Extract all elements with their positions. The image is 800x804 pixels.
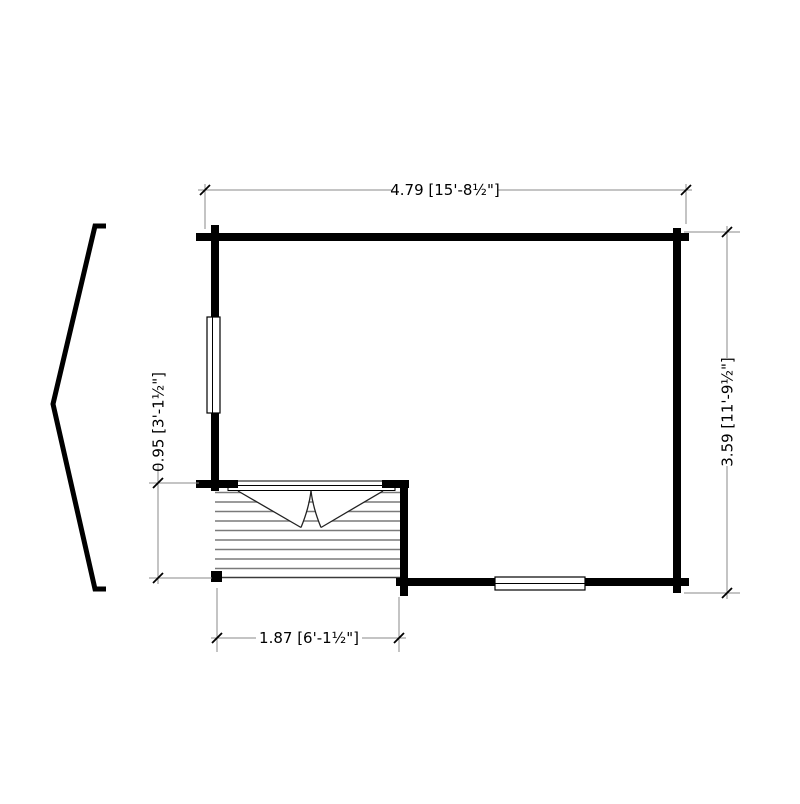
roof-gable-outline — [53, 226, 106, 589]
left-dimension: 0.95 [3'-1½"] — [149, 372, 212, 584]
right-wall — [673, 228, 681, 593]
right-dimension: 3.59 [11'-9½"] — [684, 226, 740, 599]
bottom-dimension: 1.87 [6'-1½"] — [211, 588, 406, 652]
deck-side-wall — [400, 480, 408, 596]
floor-plan-drawing: 4.79 [15'-8½"] 3.59 [11'-9½"] 0.95 [3'-1… — [0, 0, 800, 800]
floor-plan-page: 4.79 [15'-8½"] 3.59 [11'-9½"] 0.95 [3'-1… — [0, 0, 800, 800]
top-wall — [196, 233, 689, 241]
bottom-wall-left-segment — [396, 578, 495, 586]
door-swing-mask-right — [311, 491, 383, 528]
left-window — [207, 317, 220, 413]
door-wall-left-segment — [196, 480, 238, 488]
dimension-label-left: 0.95 [3'-1½"] — [150, 372, 168, 472]
bottom-wall-right-segment — [585, 578, 689, 586]
deck-corner-post — [211, 571, 222, 582]
left-window-frame — [207, 317, 220, 413]
dimension-label-top: 4.79 [15'-8½"] — [390, 181, 499, 199]
dimension-label-bottom: 1.87 [6'-1½"] — [259, 629, 359, 647]
bottom-window — [495, 577, 585, 590]
dimension-label-right: 3.59 [11'-9½"] — [719, 357, 737, 466]
top-dimension: 4.79 [15'-8½"] — [198, 181, 692, 229]
door-swing-mask-left — [238, 491, 311, 528]
roof-gable-path — [53, 226, 106, 589]
